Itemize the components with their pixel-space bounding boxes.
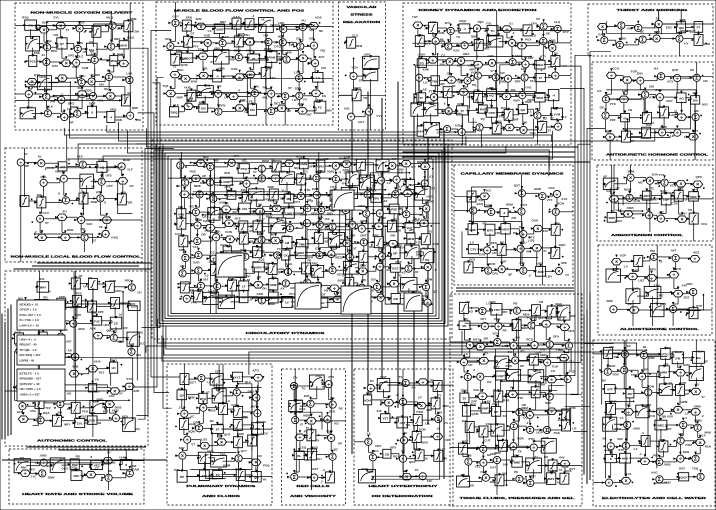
svg-text:RELAXATION: RELAXATION	[343, 20, 380, 24]
svg-text:×: ×	[393, 282, 396, 288]
svg-text:QYM: QYM	[181, 63, 188, 67]
svg-text:MHM: MHM	[123, 158, 131, 162]
svg-text:÷: ÷	[215, 235, 218, 241]
svg-text:HEART HYPERTROPHY: HEART HYPERTROPHY	[369, 484, 438, 488]
svg-text:QE: QE	[627, 302, 631, 306]
svg-text:OP: OP	[180, 475, 184, 479]
svg-text:.007: .007	[399, 421, 405, 425]
svg-text:×: ×	[432, 95, 435, 101]
svg-text:SX: SX	[627, 344, 631, 348]
svg-text:EAT: EAT	[490, 465, 496, 469]
svg-text:VLD: VLD	[32, 85, 39, 89]
svg-text:EU: EU	[63, 210, 67, 214]
svg-text:TU: TU	[491, 29, 495, 33]
svg-text:VF: VF	[603, 175, 607, 179]
svg-text:QT: QT	[79, 274, 83, 278]
svg-text:CPD: CPD	[489, 111, 496, 115]
svg-text:YRQ: YRQ	[124, 278, 131, 282]
svg-text:UUT: UUT	[294, 200, 300, 204]
svg-text:OOB: OOB	[419, 427, 427, 431]
svg-text:OLD: OLD	[548, 186, 555, 190]
svg-text:NON-MUSCLE OXYGEN DELIVERY: NON-MUSCLE OXYGEN DELIVERY	[31, 11, 133, 15]
svg-text:.0005: .0005	[223, 180, 231, 184]
svg-text:×: ×	[169, 44, 172, 50]
svg-text:XRB: XRB	[606, 299, 613, 303]
svg-text:CAPILLARY MEMBRANE DYNAMICS: CAPILLARY MEMBRANE DYNAMICS	[461, 172, 564, 176]
svg-text:×: ×	[59, 24, 62, 30]
svg-text:÷: ÷	[330, 252, 333, 258]
svg-text:÷: ÷	[202, 54, 205, 60]
svg-text:.0005: .0005	[324, 108, 332, 112]
svg-text:UM: UM	[53, 33, 58, 37]
svg-text:.0005=.2 × 257: .0005=.2 × 257	[20, 392, 41, 396]
svg-text:PS: PS	[483, 221, 487, 225]
svg-text:÷: ÷	[463, 360, 466, 366]
svg-text:RAN: RAN	[269, 56, 276, 60]
svg-text:GM: GM	[694, 109, 699, 113]
svg-text:FT: FT	[429, 89, 433, 93]
svg-text:NVR: NVR	[513, 99, 520, 103]
svg-text:MYY: MYY	[493, 366, 500, 370]
svg-text:÷: ÷	[418, 76, 421, 82]
svg-text:NG: NG	[406, 423, 411, 427]
svg-text:OH: OH	[262, 286, 267, 290]
svg-text:CKG: CKG	[657, 293, 664, 297]
svg-text:BD: BD	[484, 337, 489, 341]
svg-text:SYQ: SYQ	[558, 418, 565, 422]
svg-text:×: ×	[626, 78, 629, 84]
svg-text:FE: FE	[465, 318, 469, 322]
svg-text:÷: ÷	[360, 227, 363, 233]
svg-text:QNN: QNN	[241, 416, 248, 420]
svg-text:THIRST AND DRINKING: THIRST AND DRINKING	[617, 8, 689, 12]
svg-text:÷: ÷	[610, 73, 613, 79]
svg-text:ABM: ABM	[412, 219, 419, 223]
svg-text:XO: XO	[469, 310, 474, 314]
svg-text:LH: LH	[423, 81, 427, 85]
svg-text:-4: -4	[504, 118, 507, 122]
svg-text:.01: .01	[41, 53, 46, 57]
svg-text:÷: ÷	[679, 457, 682, 463]
svg-text:ACV: ACV	[667, 80, 673, 84]
svg-text:RZF: RZF	[73, 474, 79, 478]
svg-text:×: ×	[405, 162, 408, 168]
svg-text:240: 240	[202, 474, 207, 478]
svg-text:OT: OT	[523, 203, 527, 207]
svg-text:÷: ÷	[128, 384, 131, 390]
svg-text:1.0: 1.0	[619, 416, 624, 420]
svg-text:240: 240	[511, 216, 516, 220]
svg-text:AO: AO	[679, 96, 684, 100]
svg-text:DDY: DDY	[644, 194, 650, 198]
svg-text:×: ×	[257, 283, 260, 289]
svg-text:MLK: MLK	[697, 350, 704, 354]
svg-text:PXD: PXD	[569, 370, 576, 374]
svg-text:CCV: CCV	[43, 211, 49, 215]
svg-text:GKR: GKR	[257, 292, 265, 296]
svg-text:-4: -4	[216, 75, 219, 79]
svg-text:ZVR: ZVR	[315, 374, 322, 378]
svg-text:1.0: 1.0	[684, 412, 689, 416]
svg-text:SAR: SAR	[193, 260, 200, 264]
svg-text:.007: .007	[202, 278, 208, 282]
svg-text:DMD: DMD	[207, 450, 215, 454]
svg-text:UZG: UZG	[453, 49, 460, 53]
svg-text:57: 57	[119, 392, 123, 396]
svg-text:RG: RG	[176, 184, 181, 188]
svg-text:MHE: MHE	[470, 403, 477, 407]
svg-text:×: ×	[460, 59, 463, 65]
svg-text:57: 57	[300, 422, 304, 426]
svg-text:÷: ÷	[563, 325, 566, 331]
svg-text:57: 57	[674, 110, 678, 114]
svg-text:LV: LV	[285, 301, 289, 305]
svg-text:×: ×	[615, 260, 618, 266]
svg-text:PM: PM	[650, 249, 655, 253]
svg-text:1.0: 1.0	[226, 399, 231, 403]
svg-text:57: 57	[216, 428, 220, 432]
svg-text:USA: USA	[30, 409, 37, 413]
svg-text:ZPA: ZPA	[373, 197, 380, 201]
svg-text:HEART RATE AND STROKE VOLU: HEART RATE AND STROKE VOLUME	[22, 492, 133, 496]
svg-text:QS: QS	[422, 294, 426, 298]
svg-text:57: 57	[420, 96, 424, 100]
svg-text:÷: ÷	[42, 461, 45, 467]
svg-text:57: 57	[106, 169, 110, 173]
svg-text:OSN: OSN	[116, 118, 123, 122]
svg-text:÷: ÷	[556, 192, 559, 198]
svg-text:÷: ÷	[631, 274, 634, 280]
svg-text:GXS: GXS	[44, 87, 50, 91]
svg-text:CDN: CDN	[115, 289, 122, 293]
svg-text:FCH: FCH	[701, 222, 707, 226]
svg-text:.0005: .0005	[337, 279, 345, 283]
svg-text:ABL: ABL	[262, 96, 268, 100]
svg-text:MFB: MFB	[408, 237, 415, 241]
svg-text:×: ×	[506, 77, 509, 83]
svg-text:÷: ÷	[270, 92, 273, 98]
svg-text:BSK: BSK	[360, 263, 367, 267]
svg-text:.01: .01	[627, 472, 632, 476]
svg-text:EPF: EPF	[98, 310, 104, 314]
svg-text:GRL: GRL	[492, 272, 499, 276]
svg-text:×: ×	[520, 44, 523, 50]
svg-text:×: ×	[508, 125, 511, 131]
svg-text:AVR: AVR	[271, 169, 278, 173]
svg-text:240: 240	[99, 83, 104, 87]
svg-text:÷: ÷	[27, 92, 30, 98]
svg-text:YX: YX	[315, 438, 319, 442]
svg-text:240: 240	[543, 229, 548, 233]
svg-text:KQ: KQ	[489, 93, 494, 97]
svg-text:RNP: RNP	[569, 314, 575, 318]
svg-text:×: ×	[78, 26, 81, 32]
svg-text:HVM: HVM	[569, 406, 576, 410]
svg-text:÷: ÷	[550, 378, 553, 384]
svg-text:NRY: NRY	[64, 423, 70, 427]
svg-text:BKR: BKR	[354, 86, 361, 90]
svg-text:XXU: XXU	[667, 414, 673, 418]
svg-text:YV: YV	[565, 273, 569, 277]
svg-text:BL: BL	[643, 345, 647, 349]
svg-text:×: ×	[699, 440, 702, 446]
svg-text:PULMONARY DYNAMICS: PULMONARY DYNAMICS	[186, 484, 255, 488]
svg-text:QMZ: QMZ	[106, 328, 113, 332]
svg-text:HN: HN	[703, 79, 707, 83]
svg-text:AP: AP	[202, 174, 206, 178]
svg-text:240: 240	[675, 356, 680, 360]
svg-text:-4: -4	[238, 88, 241, 92]
svg-text:GCT: GCT	[190, 381, 197, 385]
svg-text:UEN: UEN	[615, 219, 621, 223]
svg-text:×: ×	[626, 212, 629, 218]
svg-text:.2: .2	[465, 410, 468, 414]
svg-text:×: ×	[510, 41, 513, 47]
svg-text:RD: RD	[43, 296, 48, 300]
svg-text:100: 100	[445, 438, 450, 442]
svg-text:XCM: XCM	[557, 201, 564, 205]
svg-text:÷: ÷	[483, 324, 486, 330]
svg-text:TUC: TUC	[94, 319, 101, 323]
svg-text:NAS: NAS	[422, 440, 428, 444]
svg-text:57: 57	[475, 99, 479, 103]
svg-text:EV: EV	[128, 91, 132, 95]
svg-text:SYP: SYP	[696, 304, 702, 308]
svg-text:PGS: PGS	[554, 431, 560, 435]
svg-text:DL: DL	[297, 454, 301, 458]
svg-text:×: ×	[426, 265, 429, 271]
svg-text:.01: .01	[429, 175, 434, 179]
svg-text:1.0: 1.0	[633, 447, 638, 451]
svg-text:ESE: ESE	[34, 51, 40, 55]
svg-text:÷: ÷	[306, 206, 309, 212]
svg-text:240: 240	[250, 108, 255, 112]
svg-text:ZY: ZY	[438, 393, 442, 397]
svg-text:LP: LP	[399, 184, 403, 188]
svg-text:LP: LP	[418, 395, 422, 399]
svg-text:MVH: MVH	[110, 59, 117, 63]
svg-text:RP: RP	[25, 164, 29, 168]
svg-text:ST: ST	[288, 86, 292, 90]
svg-text:OAM: OAM	[538, 383, 546, 387]
svg-text:.2: .2	[526, 421, 529, 425]
svg-text:PTQ: PTQ	[241, 167, 248, 171]
svg-text:100: 100	[201, 107, 206, 111]
svg-text:×: ×	[655, 36, 658, 42]
svg-text:÷: ÷	[639, 79, 642, 85]
svg-text:YLF: YLF	[127, 168, 133, 172]
svg-text:BQA: BQA	[43, 411, 51, 415]
svg-text:RTG: RTG	[662, 353, 669, 357]
svg-text:DP: DP	[393, 252, 397, 256]
svg-text:HNA: HNA	[463, 52, 470, 56]
svg-text:OQO: OQO	[278, 169, 286, 173]
svg-text:÷: ÷	[512, 444, 515, 450]
svg-text:ZGH: ZGH	[89, 419, 95, 423]
svg-text:CS: CS	[441, 54, 445, 58]
svg-text:HPT: HPT	[409, 228, 415, 232]
svg-text:÷: ÷	[431, 58, 434, 64]
svg-text:UFS: UFS	[106, 173, 112, 177]
svg-text:÷: ÷	[676, 131, 679, 137]
svg-text:OEB: OEB	[683, 450, 690, 454]
svg-text:GPZ: GPZ	[679, 466, 685, 470]
svg-text:÷: ÷	[104, 232, 107, 238]
svg-text:CLG: CLG	[352, 33, 359, 37]
svg-text:×: ×	[248, 40, 251, 46]
svg-text:×: ×	[169, 91, 172, 97]
svg-text:HPZ: HPZ	[104, 323, 110, 327]
svg-text:HZ: HZ	[487, 453, 491, 457]
svg-text:LYC: LYC	[31, 475, 38, 479]
svg-text:AZM: AZM	[653, 283, 660, 287]
svg-text:UQ: UQ	[206, 83, 211, 87]
svg-text:UB: UB	[97, 421, 102, 425]
svg-text:MZO: MZO	[335, 256, 342, 260]
svg-text:HRP: HRP	[540, 353, 546, 357]
svg-text:VQ: VQ	[480, 117, 485, 121]
svg-text:NYE: NYE	[235, 217, 241, 221]
svg-text:100: 100	[235, 289, 240, 293]
svg-text:SMS: SMS	[608, 216, 615, 220]
svg-text:÷: ÷	[460, 130, 463, 136]
svg-text:PVV: PVV	[76, 291, 82, 295]
svg-text:.2: .2	[657, 105, 660, 109]
svg-text:×: ×	[424, 164, 427, 170]
svg-text:ZM: ZM	[136, 118, 141, 122]
svg-text:MHV: MHV	[40, 286, 47, 290]
svg-text:÷: ÷	[608, 481, 611, 487]
svg-text:UOS: UOS	[315, 15, 322, 19]
svg-text:VVP: VVP	[287, 246, 293, 250]
svg-text:÷: ÷	[199, 161, 202, 167]
svg-text:×: ×	[61, 76, 64, 82]
svg-text:OXH: OXH	[531, 218, 538, 222]
svg-text:TEC: TEC	[270, 76, 277, 80]
svg-text:TP=QB - 1.0: TP=QB - 1.0	[20, 348, 37, 352]
svg-text:VYF: VYF	[547, 198, 553, 202]
svg-text:HZL: HZL	[455, 124, 461, 128]
svg-text:RDM: RDM	[262, 159, 269, 163]
svg-text:QFD: QFD	[696, 175, 703, 179]
svg-text:.01: .01	[91, 184, 96, 188]
svg-text:MD: MD	[287, 197, 292, 201]
svg-text:FCV: FCV	[175, 232, 181, 236]
svg-text:TDM: TDM	[494, 451, 501, 455]
svg-text:HRH: HRH	[661, 370, 668, 374]
svg-text:QRE: QRE	[680, 18, 687, 22]
svg-text:VHD: VHD	[664, 481, 671, 485]
svg-text:FA: FA	[95, 378, 100, 382]
svg-text:VRV: VRV	[214, 47, 220, 51]
svg-text:57: 57	[491, 69, 495, 73]
svg-text:.2: .2	[320, 479, 323, 483]
svg-text:×: ×	[391, 164, 394, 170]
svg-text:57: 57	[66, 28, 70, 32]
svg-text:÷: ÷	[129, 114, 132, 120]
svg-text:HP: HP	[468, 363, 472, 367]
svg-text:÷: ÷	[306, 221, 309, 227]
svg-text:×: ×	[108, 402, 111, 408]
svg-text:KSL: KSL	[474, 388, 480, 392]
svg-text:×: ×	[40, 161, 43, 167]
svg-text:÷: ÷	[554, 73, 557, 79]
svg-text:RS: RS	[339, 407, 343, 411]
svg-text:VBL: VBL	[614, 355, 620, 359]
svg-text:÷: ÷	[257, 376, 260, 382]
svg-text:8: 8	[91, 455, 93, 459]
svg-text:57: 57	[262, 217, 266, 221]
svg-text:TG: TG	[301, 387, 306, 391]
svg-text:AVT: AVT	[671, 248, 677, 252]
svg-text:PRX: PRX	[653, 454, 659, 458]
svg-text:MFF: MFF	[501, 310, 507, 314]
svg-text:PNC: PNC	[422, 247, 429, 251]
svg-text:ROY: ROY	[660, 302, 667, 306]
svg-text:÷: ÷	[661, 130, 664, 136]
svg-text:ALQ: ALQ	[554, 20, 561, 24]
svg-text:NZX(XB × .01: NZX(XB × .01	[20, 303, 39, 307]
svg-text:÷: ÷	[61, 215, 64, 221]
svg-text:OMV: OMV	[48, 476, 55, 480]
svg-text:UG: UG	[190, 205, 195, 209]
svg-text:RES: RES	[491, 241, 497, 245]
svg-text:DFM: DFM	[356, 44, 363, 48]
svg-text:EG: EG	[540, 119, 545, 123]
svg-text:LM: LM	[285, 241, 290, 245]
svg-text:XY: XY	[487, 400, 491, 404]
svg-text:÷: ÷	[486, 248, 489, 254]
svg-text:÷: ÷	[62, 177, 65, 183]
svg-text:1.0: 1.0	[470, 241, 475, 245]
svg-text:GRV: GRV	[219, 104, 225, 108]
svg-text:57: 57	[702, 395, 706, 399]
svg-text:.01: .01	[509, 21, 514, 25]
svg-text:EXQ: EXQ	[477, 202, 484, 206]
svg-text:KYZ: KYZ	[235, 376, 241, 380]
svg-text:FF: FF	[231, 183, 235, 187]
svg-text:÷: ÷	[676, 76, 679, 82]
svg-text:YX: YX	[444, 421, 448, 425]
svg-text:SR: SR	[644, 368, 649, 372]
svg-text:×: ×	[22, 417, 25, 423]
svg-text:BQO: BQO	[559, 243, 567, 247]
svg-text:.007: .007	[186, 416, 192, 420]
svg-text:×: ×	[73, 372, 76, 378]
svg-text:SNR: SNR	[268, 185, 275, 189]
svg-text:UNZ: UNZ	[130, 464, 136, 468]
svg-text:LAN=1.0 + .01: LAN=1.0 + .01	[20, 323, 40, 327]
svg-text:×: ×	[89, 473, 92, 479]
svg-text:LR: LR	[572, 426, 577, 430]
svg-text:YFH: YFH	[531, 21, 537, 25]
svg-text:8: 8	[444, 102, 446, 106]
svg-text:÷: ÷	[186, 438, 189, 444]
svg-text:÷: ÷	[680, 115, 683, 121]
svg-text:AE: AE	[423, 87, 427, 91]
svg-text:DX: DX	[600, 105, 604, 109]
svg-text:RNY: RNY	[21, 466, 27, 470]
svg-text:57: 57	[558, 317, 562, 321]
svg-text:÷: ÷	[232, 94, 235, 100]
svg-text:.2: .2	[503, 211, 506, 215]
svg-text:×: ×	[109, 94, 112, 100]
svg-text:FEX: FEX	[77, 154, 83, 158]
svg-text:CP: CP	[685, 392, 689, 396]
svg-text:ADT: ADT	[665, 427, 671, 431]
svg-text:÷: ÷	[174, 73, 177, 79]
svg-text:NFZ: NFZ	[545, 401, 551, 405]
